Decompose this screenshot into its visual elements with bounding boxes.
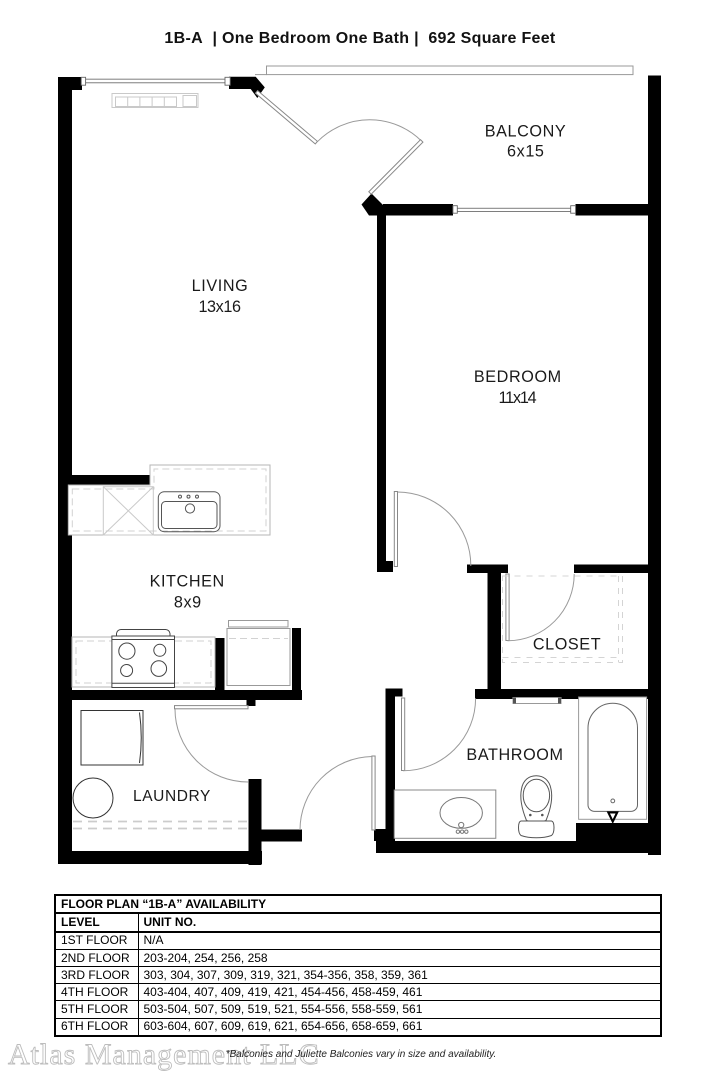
svg-text:BEDROOM: BEDROOM [474,368,562,386]
svg-text:BATHROOM: BATHROOM [466,746,563,764]
svg-text:KITCHEN: KITCHEN [150,573,225,591]
svg-text:8x9: 8x9 [174,594,202,612]
svg-text:LAUNDRY: LAUNDRY [133,788,211,805]
svg-text:LIVING: LIVING [192,277,249,295]
svg-text:6x15: 6x15 [507,143,545,161]
svg-text:13x16: 13x16 [198,298,241,316]
svg-text:CLOSET: CLOSET [533,636,601,654]
svg-text:11x14: 11x14 [499,389,537,407]
svg-text:BALCONY: BALCONY [485,122,567,140]
